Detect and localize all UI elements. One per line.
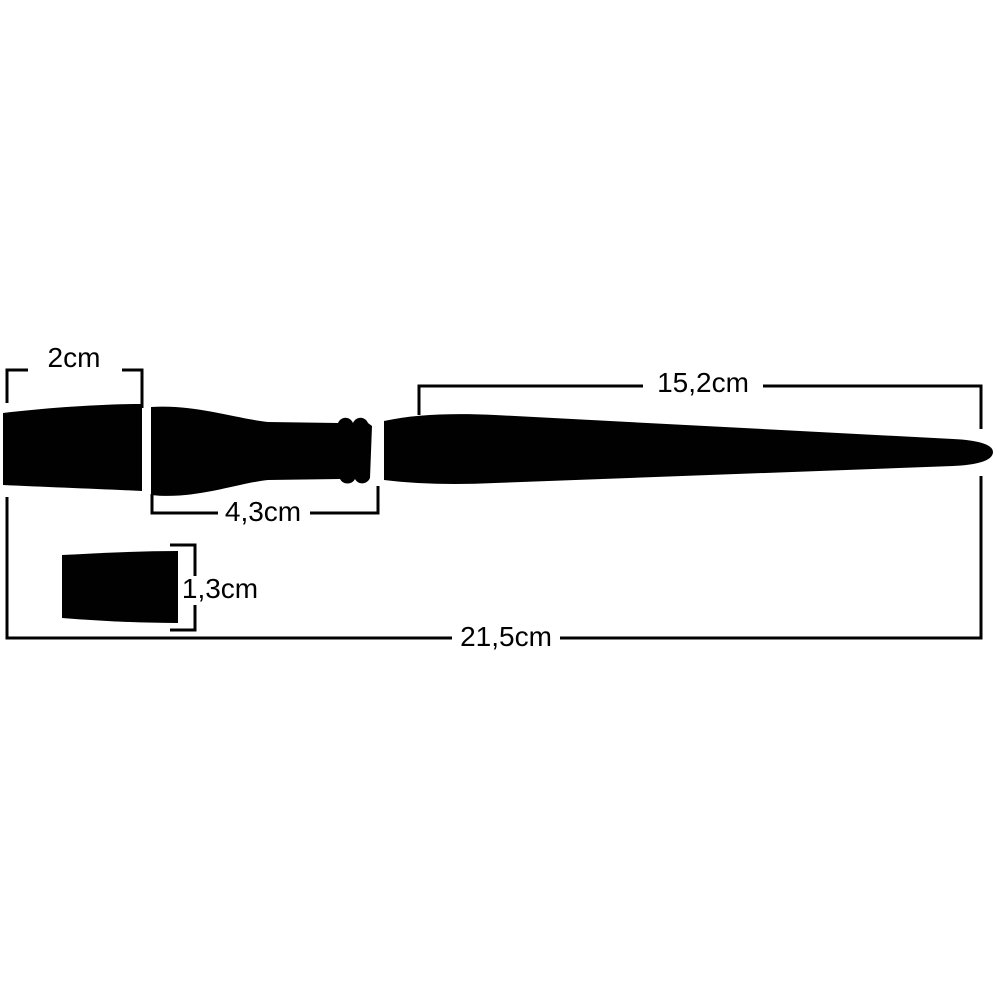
dimension-bracket-bristle-width (7, 370, 142, 408)
dimension-label-ferrule-length: 4,3cm (225, 496, 301, 527)
ferrule-silhouette (151, 407, 372, 496)
handle-silhouette (384, 414, 993, 484)
paint-brush-diagram-svg: 2cm 15,2cm 4,3cm 1,3cm 21,5cm (0, 0, 1000, 1000)
dimension-label-bristle-width: 2cm (48, 342, 101, 373)
dimension-diagram: 2cm 15,2cm 4,3cm 1,3cm 21,5cm (0, 0, 1000, 1000)
dimension-label-total-length: 21,5cm (460, 621, 552, 652)
dimension-label-bristle-thickness: 1,3cm (182, 573, 258, 604)
dimension-label-handle-length: 15,2cm (657, 367, 749, 398)
bristle-cross-section-silhouette (62, 551, 178, 623)
bristle-head-silhouette (3, 404, 142, 491)
